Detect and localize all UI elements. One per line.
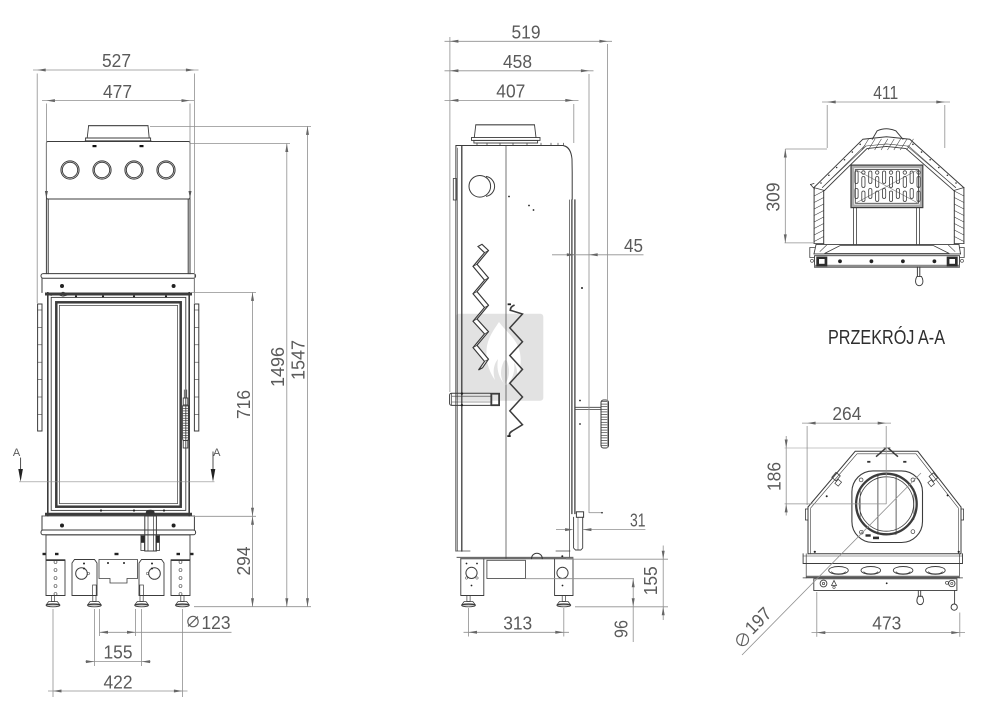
svg-text:96: 96 bbox=[610, 620, 631, 638]
svg-text:519: 519 bbox=[512, 21, 541, 42]
svg-text:477: 477 bbox=[103, 81, 132, 102]
svg-text:294: 294 bbox=[233, 547, 254, 576]
svg-text:31: 31 bbox=[630, 510, 646, 531]
svg-text:309: 309 bbox=[762, 183, 783, 212]
svg-text:458: 458 bbox=[503, 51, 532, 72]
svg-text:186: 186 bbox=[763, 462, 784, 491]
svg-text:A: A bbox=[13, 447, 21, 459]
svg-text:422: 422 bbox=[104, 672, 133, 693]
svg-text:473: 473 bbox=[872, 613, 901, 634]
svg-text:PRZEKRÓJ A-A: PRZEKRÓJ A-A bbox=[828, 326, 945, 349]
svg-text:411: 411 bbox=[873, 82, 898, 103]
svg-text:716: 716 bbox=[233, 390, 254, 419]
svg-text:264: 264 bbox=[832, 403, 861, 424]
svg-text:407: 407 bbox=[496, 80, 525, 101]
svg-text:1547: 1547 bbox=[288, 340, 309, 380]
svg-text:155: 155 bbox=[640, 566, 661, 595]
svg-text:527: 527 bbox=[102, 50, 131, 71]
svg-text:123: 123 bbox=[202, 612, 231, 633]
svg-text:45: 45 bbox=[624, 235, 643, 256]
svg-text:313: 313 bbox=[503, 612, 532, 633]
svg-text:155: 155 bbox=[104, 641, 133, 662]
svg-text:A: A bbox=[213, 447, 221, 459]
svg-text:1496: 1496 bbox=[267, 347, 288, 387]
